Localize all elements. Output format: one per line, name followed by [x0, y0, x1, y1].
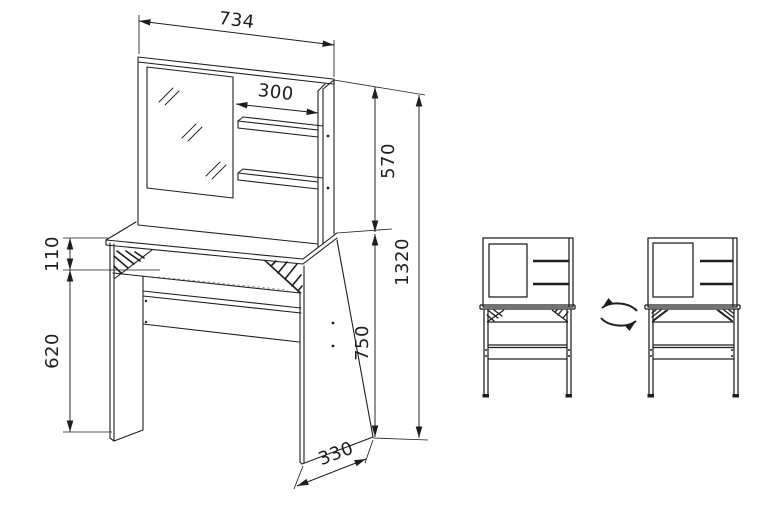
technical-drawing-page: 734 300 570 750 1320 110	[0, 0, 764, 515]
dim-label-shelf-width: 300	[257, 80, 295, 105]
dim-overall-width: 734	[139, 8, 334, 77]
fitting-dot	[145, 300, 147, 302]
dim-table-height: 750	[352, 234, 428, 440]
dim-label-total-height: 1320	[392, 238, 413, 286]
foot	[566, 394, 573, 398]
dim-shelf-width: 300	[236, 80, 318, 113]
foot	[648, 394, 655, 398]
front-view-a	[480, 238, 575, 398]
mirror	[653, 243, 693, 297]
main-projection-view	[106, 57, 373, 464]
front-view-b	[645, 238, 740, 398]
shelves	[238, 117, 323, 189]
cabinet-side-board	[318, 80, 334, 247]
foot	[483, 394, 490, 398]
corner-brace-right	[717, 310, 733, 322]
dim-label-clearance-height: 620	[42, 333, 63, 369]
foot	[733, 394, 740, 398]
mirror-glass-hatch	[159, 88, 226, 179]
fitting-dot	[327, 187, 330, 190]
drawer-hidden-line	[158, 277, 288, 290]
fitting-dot	[145, 321, 147, 323]
dim-label-table-height: 750	[352, 325, 373, 361]
apron	[143, 291, 301, 342]
fitting-dot	[327, 135, 330, 138]
rotate-arrows-icon	[601, 303, 637, 325]
dim-depth: 330	[294, 438, 373, 489]
mirror	[489, 244, 527, 297]
dim-label-overall-width: 734	[218, 8, 256, 33]
corner-brace-right	[552, 310, 568, 322]
apron	[488, 345, 567, 359]
dim-upper-height: 570	[334, 80, 425, 233]
technical-drawing-canvas: 734 300 570 750 1320 110	[0, 0, 764, 515]
dim-clearance-height: 620	[42, 270, 112, 432]
mirror	[147, 67, 233, 198]
dim-label-upper-height: 570	[378, 143, 399, 179]
upper-cabinet-panel	[138, 57, 334, 244]
left-leg	[110, 243, 147, 441]
apron	[653, 345, 734, 359]
dim-label-drawer-height: 110	[42, 236, 63, 272]
fitting-dot	[332, 345, 335, 348]
fitting-dot	[332, 322, 335, 325]
dim-drawer-height: 110	[42, 236, 160, 272]
corner-brace-left	[652, 310, 668, 322]
corner-brace-right	[264, 260, 302, 293]
corner-brace-left	[487, 310, 504, 322]
tabletop	[106, 222, 337, 264]
dimensions: 734 300 570 750 1320 110	[42, 8, 428, 489]
